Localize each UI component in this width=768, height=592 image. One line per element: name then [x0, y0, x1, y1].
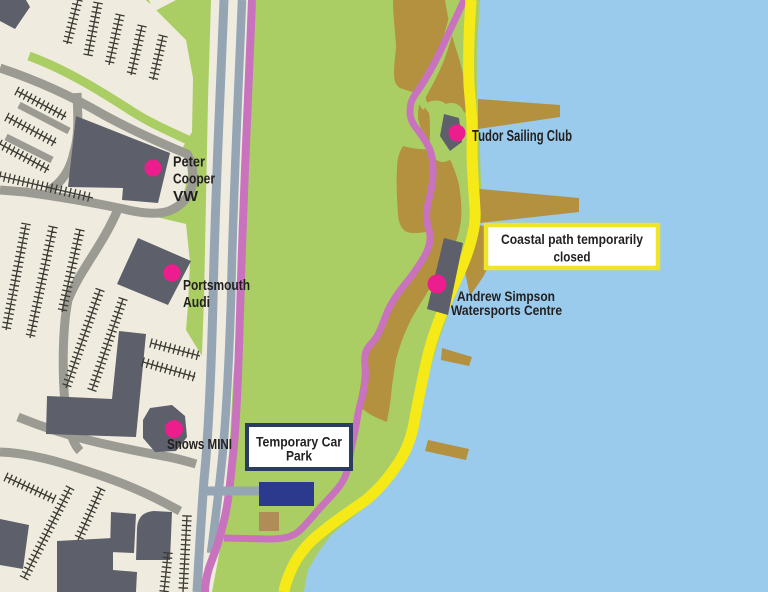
svg-text:Andrew SimpsonWatersports Cent: Andrew SimpsonWatersports Centre: [451, 288, 562, 318]
svg-text:Tudor Sailing Club: Tudor Sailing Club: [472, 128, 572, 145]
svg-text:Snows MINI: Snows MINI: [167, 437, 232, 453]
